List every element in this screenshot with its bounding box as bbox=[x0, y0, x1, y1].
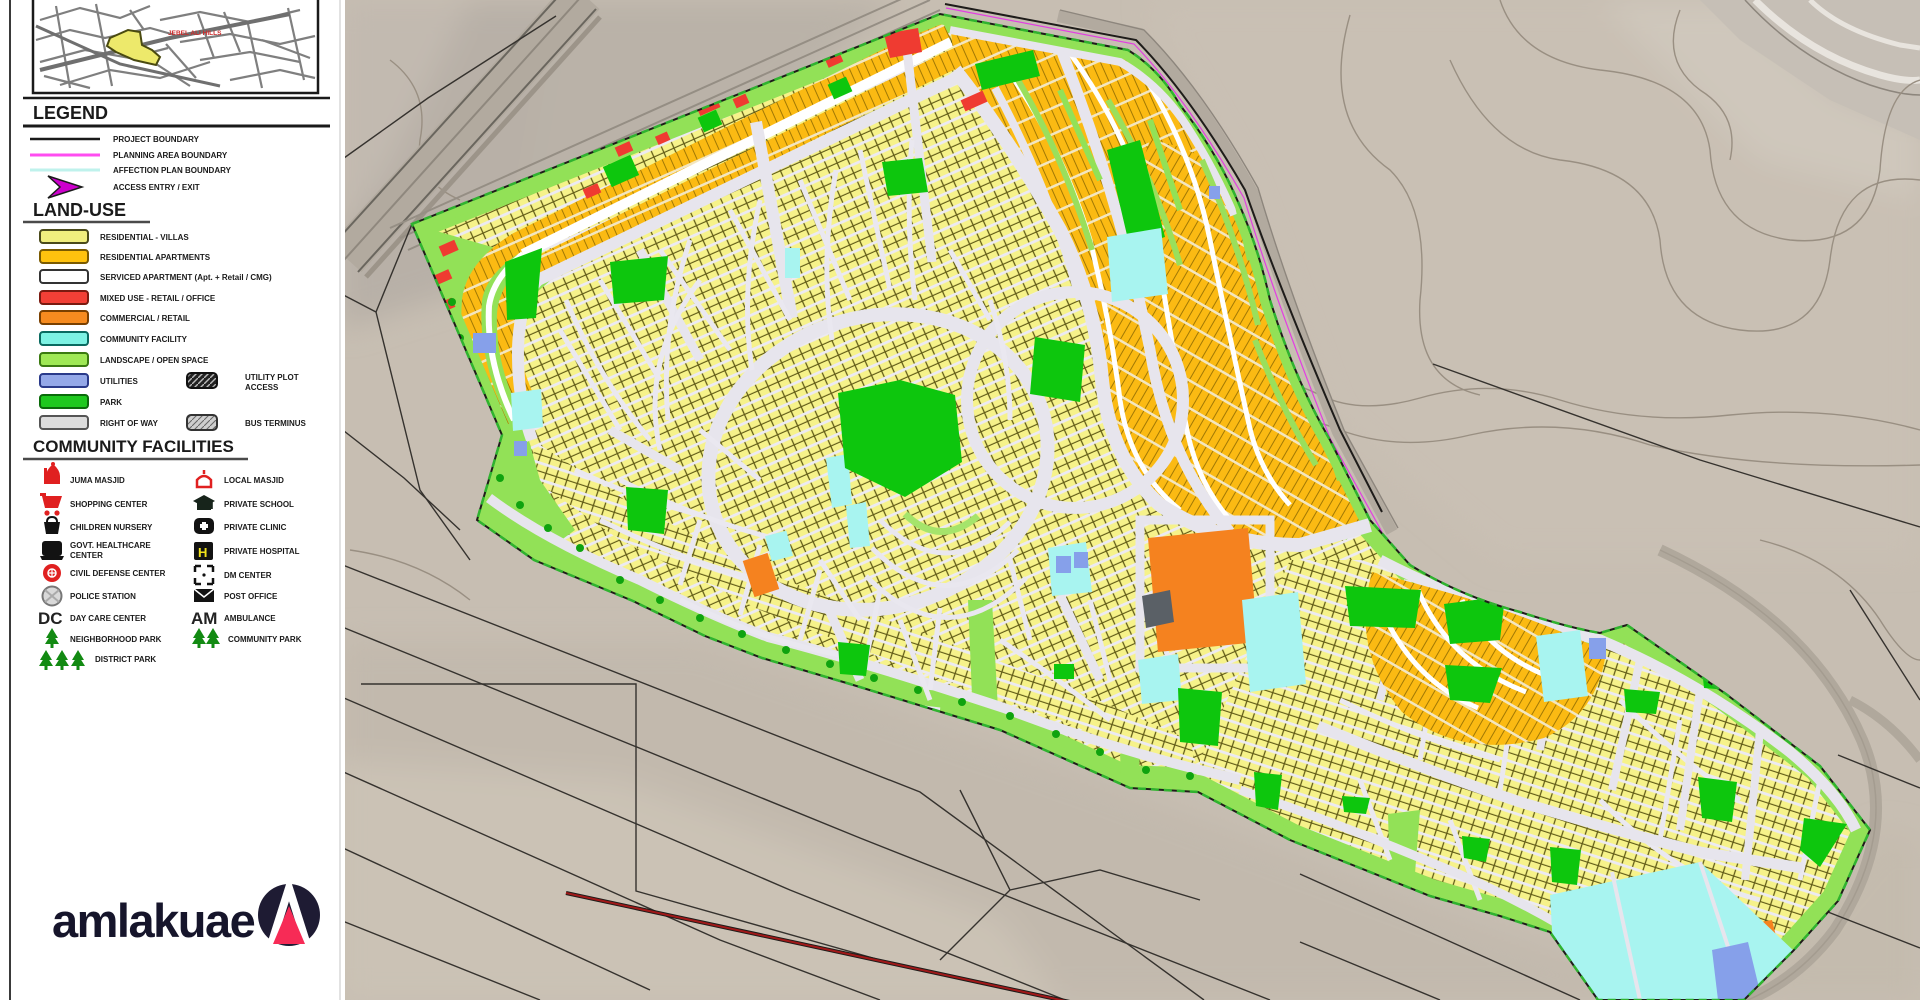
svg-text:LOCAL MASJID: LOCAL MASJID bbox=[224, 476, 284, 485]
svg-text:JEBEL ALI HILLS: JEBEL ALI HILLS bbox=[168, 30, 222, 37]
svg-text:SERVICED APARTMENT (Apt. + Ret: SERVICED APARTMENT (Apt. + Retail / CMG) bbox=[100, 273, 272, 282]
svg-text:AFFECTION PLAN BOUNDARY: AFFECTION PLAN BOUNDARY bbox=[113, 166, 232, 175]
svg-text:BUS TERMINUS: BUS TERMINUS bbox=[245, 419, 307, 428]
svg-text:PRIVATE SCHOOL: PRIVATE SCHOOL bbox=[224, 500, 294, 509]
svg-text:PARK: PARK bbox=[100, 398, 122, 407]
svg-text:COMMUNITY FACILITY: COMMUNITY FACILITY bbox=[100, 335, 188, 344]
svg-text:AMBULANCE: AMBULANCE bbox=[224, 614, 276, 623]
svg-text:POLICE STATION: POLICE STATION bbox=[70, 592, 136, 601]
svg-text:PRIVATE HOSPITAL: PRIVATE HOSPITAL bbox=[224, 547, 300, 556]
svg-text:RESIDENTIAL APARTMENTS: RESIDENTIAL APARTMENTS bbox=[100, 253, 211, 262]
svg-text:amlakuae: amlakuae bbox=[52, 894, 255, 947]
svg-text:CIVIL DEFENSE CENTER: CIVIL DEFENSE CENTER bbox=[70, 569, 166, 578]
svg-text:UTILITY PLOT: UTILITY PLOT bbox=[245, 373, 299, 382]
svg-text:ACCESS: ACCESS bbox=[245, 383, 279, 392]
svg-text:LANDSCAPE / OPEN SPACE: LANDSCAPE / OPEN SPACE bbox=[100, 356, 209, 365]
svg-text:PRIVATE CLINIC: PRIVATE CLINIC bbox=[224, 523, 287, 532]
svg-text:COMMERCIAL / RETAIL: COMMERCIAL / RETAIL bbox=[100, 314, 190, 323]
svg-text:COMMUNITY FACILITIES: COMMUNITY FACILITIES bbox=[33, 437, 234, 456]
svg-text:RIGHT OF WAY: RIGHT OF WAY bbox=[100, 419, 159, 428]
svg-text:RESIDENTIAL - VILLAS: RESIDENTIAL - VILLAS bbox=[100, 233, 189, 242]
svg-text:CHILDREN NURSERY: CHILDREN NURSERY bbox=[70, 523, 153, 532]
svg-text:LEGEND: LEGEND bbox=[33, 103, 108, 123]
svg-text:NEIGHBORHOOD PARK: NEIGHBORHOOD PARK bbox=[70, 635, 162, 644]
svg-text:POST OFFICE: POST OFFICE bbox=[224, 592, 278, 601]
svg-text:DC: DC bbox=[38, 609, 63, 628]
svg-text:CENTER: CENTER bbox=[70, 551, 103, 560]
svg-text:H: H bbox=[198, 545, 207, 560]
svg-text:LAND-USE: LAND-USE bbox=[33, 200, 126, 220]
svg-text:AM: AM bbox=[191, 609, 217, 628]
svg-text:UTILITIES: UTILITIES bbox=[100, 377, 138, 386]
svg-text:COMMUNITY PARK: COMMUNITY PARK bbox=[228, 635, 302, 644]
svg-text:DM CENTER: DM CENTER bbox=[224, 571, 272, 580]
svg-text:DISTRICT PARK: DISTRICT PARK bbox=[95, 655, 156, 664]
svg-text:ACCESS ENTRY / EXIT: ACCESS ENTRY / EXIT bbox=[113, 183, 200, 192]
svg-text:DAY CARE CENTER: DAY CARE CENTER bbox=[70, 614, 146, 623]
svg-text:PROJECT BOUNDARY: PROJECT BOUNDARY bbox=[113, 135, 200, 144]
svg-text:GOVT. HEALTHCARE: GOVT. HEALTHCARE bbox=[70, 541, 151, 550]
svg-text:SHOPPING CENTER: SHOPPING CENTER bbox=[70, 500, 148, 509]
svg-text:JUMA MASJID: JUMA MASJID bbox=[70, 476, 125, 485]
svg-text:MIXED USE - RETAIL / OFFICE: MIXED USE - RETAIL / OFFICE bbox=[100, 294, 216, 303]
svg-text:PLANNING AREA BOUNDARY: PLANNING AREA BOUNDARY bbox=[113, 151, 228, 160]
